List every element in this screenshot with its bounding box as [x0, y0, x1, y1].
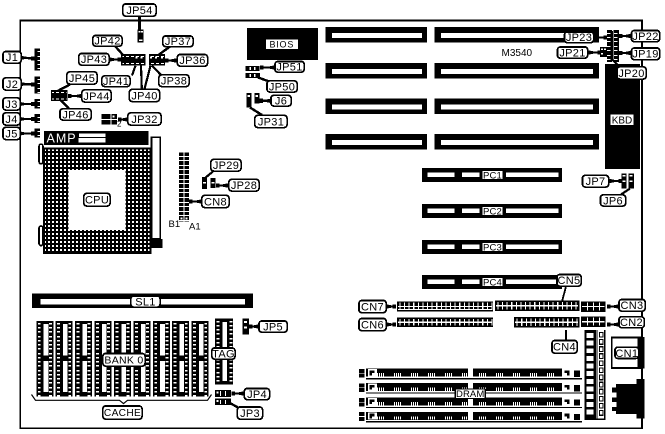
svg-text:JP43: JP43	[81, 54, 107, 66]
svg-text:CN6: CN6	[361, 319, 384, 331]
svg-text:JP36: JP36	[179, 55, 205, 67]
svg-text:JP38: JP38	[161, 76, 187, 88]
svg-text:JP42: JP42	[94, 36, 120, 48]
svg-text:PC2: PC2	[483, 206, 502, 217]
svg-text:JP51: JP51	[276, 62, 302, 74]
svg-text:TAG: TAG	[212, 348, 235, 360]
svg-text:CACHE: CACHE	[104, 408, 141, 419]
svg-text:CN8: CN8	[204, 196, 227, 208]
svg-text:CPU: CPU	[85, 195, 109, 207]
svg-text:CN2: CN2	[620, 317, 643, 329]
svg-text:J2: J2	[6, 79, 18, 91]
svg-text:J3: J3	[5, 99, 17, 111]
svg-text:J6: J6	[275, 96, 287, 108]
svg-text:A1: A1	[189, 222, 201, 233]
svg-text:M3540: M3540	[502, 48, 533, 59]
svg-text:JP40: JP40	[131, 90, 157, 102]
svg-text:JP23: JP23	[566, 32, 592, 44]
svg-text:CN7: CN7	[361, 301, 384, 313]
svg-text:JP21: JP21	[559, 47, 585, 59]
svg-text:JP31: JP31	[258, 116, 284, 128]
svg-text:2: 2	[117, 120, 122, 129]
svg-text:J5: J5	[5, 128, 17, 140]
svg-text:JP45: JP45	[69, 73, 95, 85]
svg-text:KBD: KBD	[612, 115, 633, 126]
svg-text:J4: J4	[5, 114, 17, 126]
svg-text:JP5: JP5	[263, 321, 283, 333]
svg-text:JP6: JP6	[603, 195, 623, 207]
svg-text:BIOS: BIOS	[269, 40, 294, 50]
svg-text:CN3: CN3	[621, 300, 644, 312]
svg-text:JP41: JP41	[103, 76, 129, 88]
svg-text:JP32: JP32	[131, 114, 157, 126]
svg-text:J1: J1	[6, 52, 18, 64]
svg-text:JP29: JP29	[213, 160, 239, 172]
svg-text:JP20: JP20	[618, 68, 644, 80]
svg-text:DRAM: DRAM	[456, 389, 484, 400]
svg-text:JP44: JP44	[83, 91, 109, 103]
svg-text:CN4: CN4	[553, 342, 576, 354]
svg-text:JP3: JP3	[240, 408, 260, 420]
svg-text:AMP: AMP	[47, 131, 77, 145]
svg-text:PC1: PC1	[483, 170, 502, 181]
svg-text:B1: B1	[169, 219, 181, 230]
svg-text:JP22: JP22	[632, 31, 658, 43]
svg-text:PC4: PC4	[483, 277, 502, 288]
svg-text:CN5: CN5	[558, 275, 581, 287]
svg-text:JP54: JP54	[126, 5, 152, 17]
svg-text:JP28: JP28	[231, 180, 257, 192]
svg-text:JP19: JP19	[632, 49, 658, 61]
svg-text:JP7: JP7	[586, 176, 606, 188]
svg-text:JP46: JP46	[62, 109, 88, 121]
svg-text:JP37: JP37	[165, 36, 191, 48]
svg-text:JP4: JP4	[247, 389, 267, 401]
svg-text:JP50: JP50	[269, 81, 295, 93]
svg-text:PC3: PC3	[483, 242, 502, 253]
svg-text:BANK 0: BANK 0	[104, 354, 143, 366]
svg-text:SL1: SL1	[135, 296, 155, 308]
svg-text:CN1: CN1	[615, 348, 638, 360]
